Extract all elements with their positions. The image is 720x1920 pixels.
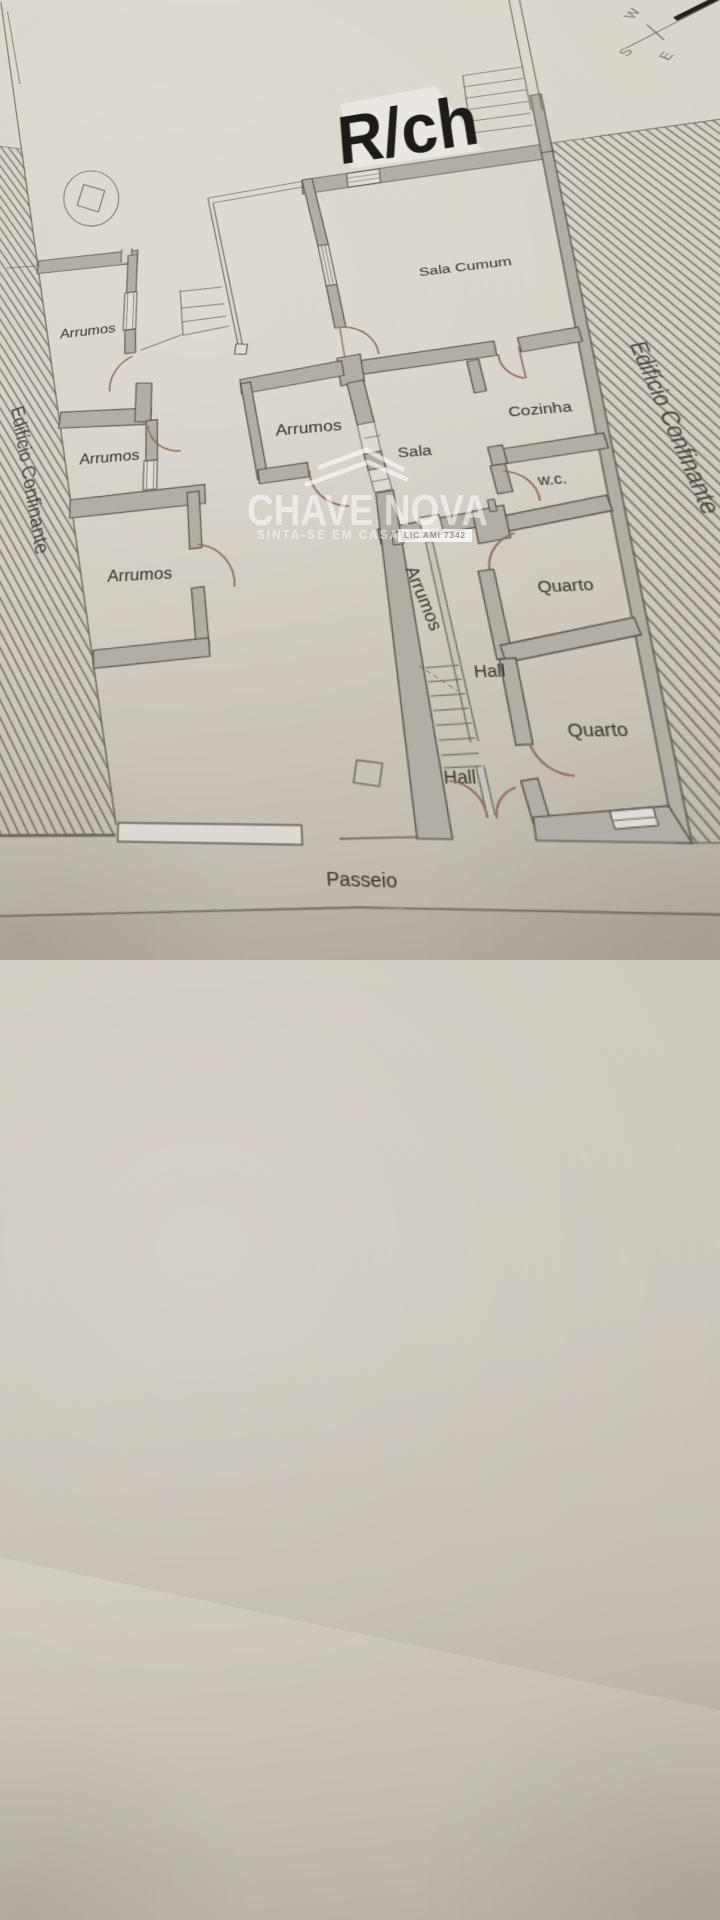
svg-text:Arrumos: Arrumos — [60, 322, 117, 342]
svg-text:Quarto: Quarto — [566, 720, 630, 742]
svg-text:Hall: Hall — [443, 768, 478, 790]
svg-text:Quarto: Quarto — [536, 576, 595, 597]
svg-text:w.c.: w.c. — [535, 471, 568, 489]
svg-text:Passeio: Passeio — [326, 869, 399, 894]
svg-text:E: E — [656, 50, 678, 63]
svg-text:W: W — [621, 7, 645, 22]
svg-text:Sala Cumum: Sala Cumum — [418, 255, 512, 280]
svg-text:Hall: Hall — [473, 662, 507, 683]
svg-text:Arrumos: Arrumos — [107, 565, 173, 586]
svg-text:Arrumos: Arrumos — [275, 418, 343, 440]
svg-text:S: S — [616, 46, 638, 59]
svg-text:Arrumos: Arrumos — [79, 448, 140, 469]
svg-text:Cozinha: Cozinha — [507, 400, 574, 421]
